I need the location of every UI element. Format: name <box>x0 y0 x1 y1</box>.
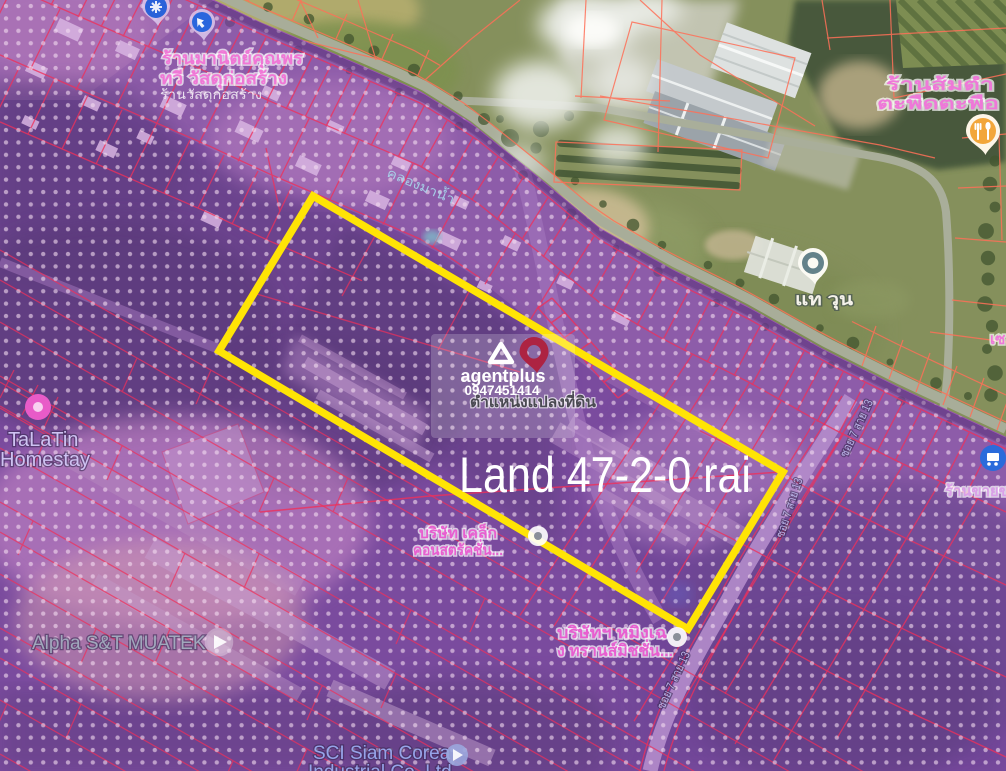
svg-text:Alpha S&T MUATEK: Alpha S&T MUATEK <box>32 633 206 654</box>
svg-text:บริษัทฯ หมิงเฉ: บริษัทฯ หมิงเฉ <box>557 624 667 642</box>
svg-text:Homestay: Homestay <box>0 449 90 471</box>
svg-text:Land 47-2-0 rai: Land 47-2-0 rai <box>459 447 751 503</box>
svg-text:ทวี วัสดุก่อสร้าง: ทวี วัสดุก่อสร้าง <box>160 68 287 89</box>
svg-text:บริษัท เคล็ก: บริษัท เคล็ก <box>419 523 497 542</box>
svg-text:Industrial Co. Ltd: Industrial Co. Ltd <box>308 762 452 771</box>
svg-text:ร้านมานิตย์คุณพร: ร้านมานิตย์คุณพร <box>162 48 304 69</box>
svg-text:ตำแหน่งแปลงที่ดิน: ตำแหน่งแปลงที่ดิน <box>470 391 597 411</box>
svg-text:ตะพืดตะพือ: ตะพืดตะพือ <box>877 93 999 113</box>
svg-text:ร้านส้มตำ: ร้านส้มตำ <box>886 75 994 94</box>
svg-text:เซ: เซ <box>990 331 1005 348</box>
svg-text:TaLaTin: TaLaTin <box>8 429 78 451</box>
svg-text:ร้านขายของ: ร้านขายของ <box>945 483 1006 500</box>
svg-text:แท วุน: แท วุน <box>795 290 853 310</box>
svg-text:ร้านวัสดุก่อสร้าง: ร้านวัสดุก่อสร้าง <box>160 87 262 103</box>
svg-text:ง ทรานส์มิชชั่น...: ง ทรานส์มิชชั่น... <box>557 639 673 660</box>
svg-text:คอนสตรัคชั่น...: คอนสตรัคชั่น... <box>413 539 503 559</box>
svg-text:SCI Siam Corea: SCI Siam Corea <box>313 743 451 764</box>
